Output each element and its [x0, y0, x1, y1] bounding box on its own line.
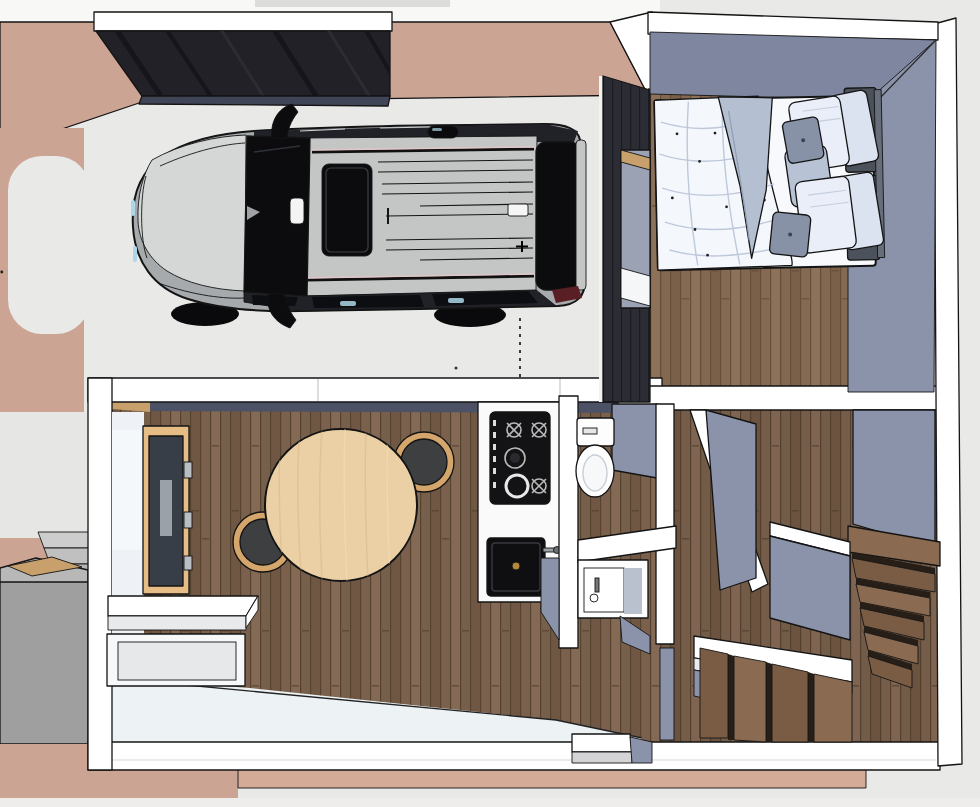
canopy-white-edge [94, 12, 392, 31]
toilet-nook-wall-face [612, 404, 657, 478]
floorplan-render [0, 0, 980, 807]
window-light [112, 430, 142, 550]
basin [584, 568, 624, 612]
bedroom-window [621, 150, 650, 308]
faucet-stem [595, 578, 599, 592]
tailgate-edge [576, 140, 586, 290]
basin-shade [624, 568, 642, 614]
shelf-front [108, 616, 246, 630]
cabinet-inset [118, 642, 236, 680]
planter-box [0, 557, 88, 744]
tv-bracket-2 [184, 512, 192, 528]
drain [512, 562, 520, 570]
sunroof [322, 164, 372, 256]
wall-shelf [108, 596, 258, 630]
headlight-glint-1 [131, 200, 135, 216]
step-1 [38, 532, 90, 548]
step-top [572, 734, 632, 752]
step-face [572, 752, 632, 763]
top-edge-sliver [255, 0, 450, 7]
faucet-knob [590, 594, 598, 602]
driveway-bulge [8, 156, 90, 334]
south-wall [88, 742, 940, 770]
planter-front [0, 582, 88, 744]
roof-antenna [428, 126, 458, 138]
gas-cooktop [490, 412, 550, 504]
entry-walkway [0, 412, 88, 538]
canopy-fascia [139, 96, 390, 106]
toilet [576, 418, 614, 497]
divider-wall [559, 396, 578, 648]
tv-bracket-3 [184, 556, 192, 570]
bath-east-wall [656, 404, 674, 644]
bottom-edge [0, 798, 980, 807]
door-handle-glint-2 [448, 298, 464, 303]
toilet-seat [583, 455, 607, 491]
entry-floor-left [112, 678, 250, 742]
round-dining-table [265, 429, 417, 581]
tailgate-handle [508, 204, 528, 216]
carport-canopy [94, 12, 412, 110]
roof-latch [290, 198, 304, 224]
floor-dot [455, 367, 458, 370]
shelf-top [108, 596, 258, 616]
west-wall [88, 378, 112, 770]
bath-east-wall-lower-face [660, 648, 674, 740]
closet-east-wall-face [853, 410, 935, 548]
tv-panel [143, 426, 192, 594]
step-side [630, 737, 652, 763]
floorplan-viewport[interactable] [0, 0, 980, 807]
flush-button [583, 428, 597, 434]
headlight-glint-2 [133, 246, 137, 262]
tv-stand-strip [160, 480, 172, 536]
low-cabinet [107, 634, 245, 686]
mid-door-glass [312, 295, 424, 308]
tv-bracket-1 [184, 462, 192, 478]
rear-glass [536, 142, 580, 290]
door-handle-glint-1 [340, 301, 356, 306]
